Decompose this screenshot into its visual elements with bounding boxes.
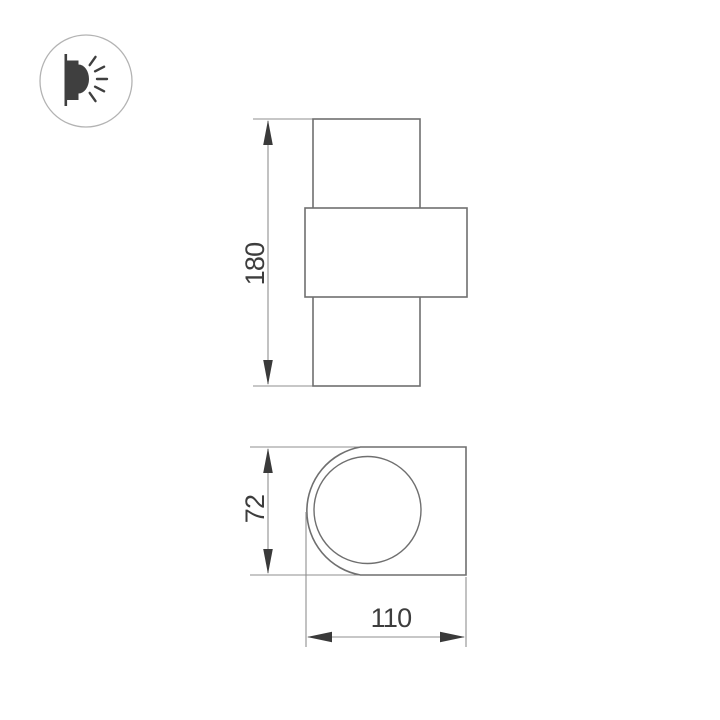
icon-lamp-dome xyxy=(79,65,90,94)
side-view xyxy=(250,447,466,575)
arrow-down xyxy=(263,549,273,574)
luminaire-dimension-drawing: 180 72 110 xyxy=(0,0,720,720)
arrow-up xyxy=(263,448,273,473)
arrow-up xyxy=(263,120,273,145)
dimension-depth-72: 72 xyxy=(240,448,273,574)
dimension-height-180: 180 xyxy=(240,120,273,385)
depth-dimension-label: 72 xyxy=(240,495,270,523)
front-view xyxy=(253,119,467,386)
width-dimension-label: 110 xyxy=(371,603,412,633)
mount-bracket-front-outline xyxy=(305,208,467,297)
arrow-down xyxy=(263,360,273,385)
icon-light-rays xyxy=(90,57,107,101)
arrow-left xyxy=(307,632,332,642)
lamp-body-side-profile xyxy=(307,447,466,575)
product-dimension-sheet: 180 72 110 xyxy=(0,0,720,720)
icon-wall-plate xyxy=(65,54,68,106)
wall-lamp-icon xyxy=(40,35,132,127)
icon-lamp-body xyxy=(67,61,79,101)
height-dimension-label: 180 xyxy=(240,243,270,286)
arrow-right xyxy=(440,632,465,642)
